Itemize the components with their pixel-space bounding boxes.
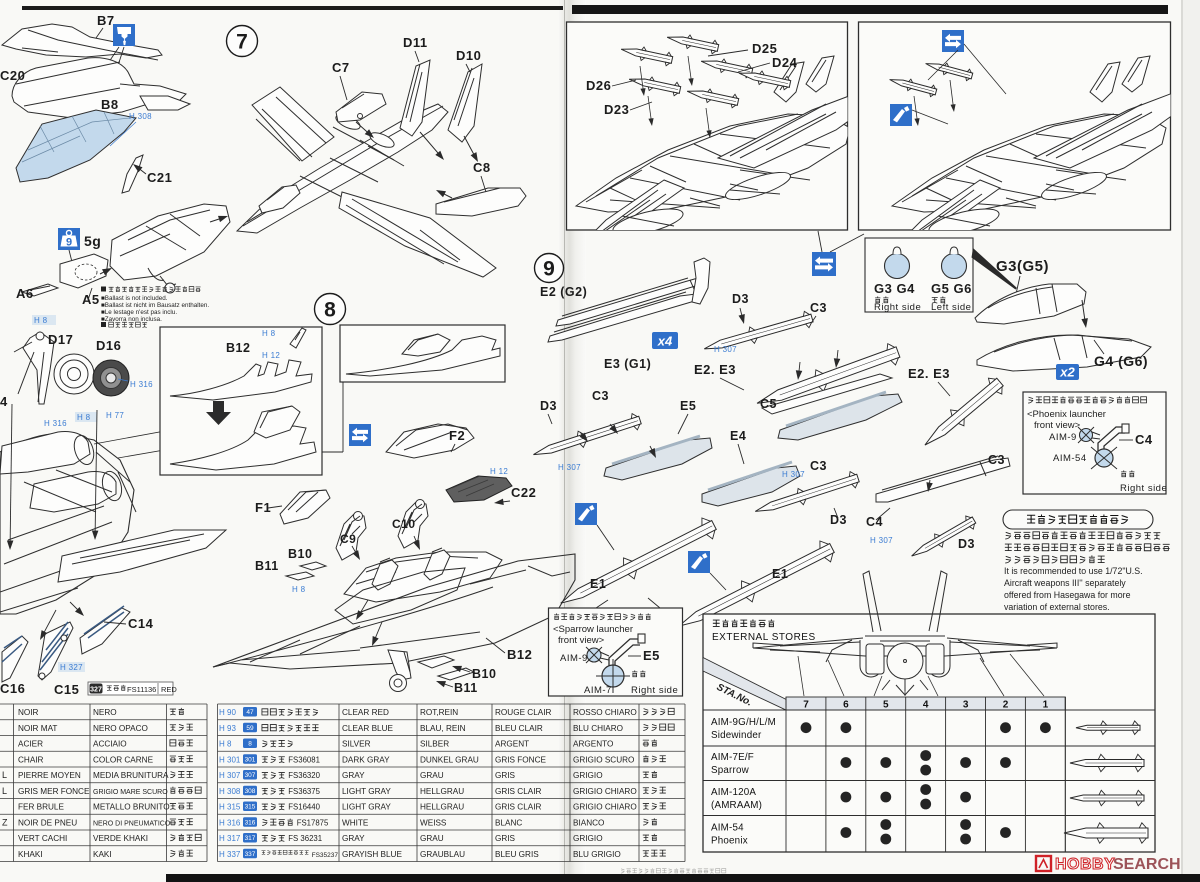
svg-text:C3: C3: [988, 453, 1005, 467]
svg-text:GRIGIO MARE SCURO: GRIGIO MARE SCURO: [93, 789, 168, 796]
svg-text:B7: B7: [97, 13, 115, 28]
svg-text:AIM-120A: AIM-120A: [711, 787, 756, 798]
svg-text:FS36375: FS36375: [288, 787, 320, 796]
svg-text:<Phoenix launcher: <Phoenix launcher: [1027, 409, 1106, 420]
svg-text:DARK GRAY: DARK GRAY: [342, 755, 390, 764]
svg-text:G3(G5): G3(G5): [996, 258, 1049, 275]
svg-text:VERDE KHAKI: VERDE KHAKI: [93, 834, 148, 843]
svg-text:VERT CACHI: VERT CACHI: [18, 834, 67, 843]
svg-text:59: 59: [246, 725, 254, 732]
svg-text:H 316: H 316: [219, 818, 241, 827]
svg-text:8: 8: [248, 741, 252, 748]
svg-text:H 316: H 316: [130, 380, 153, 389]
svg-text:AIM-9G/H/L/M: AIM-9G/H/L/M: [711, 717, 776, 728]
svg-text:Right side: Right side: [1120, 483, 1167, 494]
svg-text:GRAUBLAU: GRAUBLAU: [420, 850, 465, 859]
svg-text:D10: D10: [456, 48, 481, 63]
svg-text:BLU CHIARO: BLU CHIARO: [573, 724, 623, 733]
svg-text:GRAYISH BLUE: GRAYISH BLUE: [342, 850, 402, 859]
svg-text:AIM-7E/F: AIM-7E/F: [711, 752, 754, 763]
svg-text:MEDIA BRUNITURA: MEDIA BRUNITURA: [93, 771, 169, 780]
svg-text:DUNKEL GRAU: DUNKEL GRAU: [420, 755, 479, 764]
svg-text:CHAIR: CHAIR: [18, 755, 44, 764]
svg-text:WHITE: WHITE: [342, 818, 369, 827]
svg-text:H 12: H 12: [262, 351, 280, 360]
svg-text:337: 337: [245, 851, 256, 858]
svg-text:H 316: H 316: [44, 419, 67, 428]
svg-text:Left side: Left side: [931, 302, 971, 313]
svg-text:■Ballast is not included.: ■Ballast is not included.: [101, 295, 168, 302]
svg-text:CLEAR BLUE: CLEAR BLUE: [342, 724, 394, 733]
svg-text:D17: D17: [48, 332, 73, 347]
svg-text:BLAU, REIN: BLAU, REIN: [420, 724, 466, 733]
svg-text:9: 9: [543, 258, 555, 281]
svg-text:FS36320: FS36320: [288, 771, 320, 780]
svg-text:A6: A6: [16, 286, 34, 301]
svg-text:B10: B10: [472, 667, 496, 681]
svg-text:BLEU CLAIR: BLEU CLAIR: [495, 724, 543, 733]
svg-text:GRIGIO: GRIGIO: [573, 834, 603, 843]
svg-text:HELLGRAU: HELLGRAU: [420, 803, 464, 812]
svg-text:ACIER: ACIER: [18, 740, 43, 749]
svg-text:E2 (G2): E2 (G2): [540, 285, 587, 299]
svg-text:H 301: H 301: [219, 755, 241, 764]
svg-text:H 308: H 308: [129, 112, 152, 121]
svg-text:B11: B11: [454, 681, 478, 695]
svg-text:H 337: H 337: [219, 850, 241, 859]
svg-text:ROT,REIN: ROT,REIN: [420, 708, 458, 717]
svg-text:H 8: H 8: [292, 585, 306, 594]
svg-text:FS16440: FS16440: [288, 803, 320, 812]
svg-text:5g: 5g: [84, 233, 101, 249]
svg-text:FS11136: FS11136: [127, 685, 156, 694]
svg-text:E5: E5: [643, 648, 660, 663]
svg-text:D3: D3: [958, 537, 975, 551]
svg-text:ACCIAIO: ACCIAIO: [93, 740, 127, 749]
svg-text:H 307: H 307: [870, 536, 893, 545]
svg-text:G4 (G6): G4 (G6): [1094, 353, 1148, 369]
svg-text:308: 308: [245, 788, 256, 795]
svg-text:L: L: [2, 786, 7, 796]
svg-text:GRAU: GRAU: [420, 771, 444, 780]
svg-text:E2. E3: E2. E3: [908, 366, 950, 381]
svg-text:H 307: H 307: [782, 470, 805, 479]
svg-text:C22: C22: [511, 485, 536, 500]
svg-text:E5: E5: [680, 399, 696, 413]
svg-text:Aircraft weapons III'' sepa: Aircraft weapons III'' separately: [1004, 578, 1126, 588]
svg-text:C3: C3: [810, 301, 827, 315]
svg-text:C4: C4: [1135, 432, 1153, 447]
svg-text:ARGENTO: ARGENTO: [573, 740, 613, 749]
svg-text:H 90: H 90: [219, 708, 236, 717]
svg-text:FS17875: FS17875: [297, 818, 329, 827]
svg-text:It is recommended to use 1/72": It is recommended to use 1/72"U.S.: [1004, 566, 1143, 576]
svg-text:D23: D23: [604, 102, 629, 117]
svg-text:C3: C3: [810, 459, 827, 473]
svg-text:NOIR: NOIR: [18, 708, 39, 717]
svg-text:AIM-9: AIM-9: [1049, 432, 1077, 443]
svg-text:NOIR DE PNEU: NOIR DE PNEU: [18, 818, 77, 827]
svg-text:307: 307: [245, 772, 256, 779]
svg-text:C7: C7: [332, 60, 350, 75]
svg-text:8: 8: [324, 299, 336, 322]
svg-text:EXTERNAL STORES: EXTERNAL STORES: [712, 632, 816, 643]
svg-text:GRIGIO CHIARO: GRIGIO CHIARO: [573, 787, 637, 796]
svg-text:BIANCO: BIANCO: [573, 818, 604, 827]
svg-text:5: 5: [883, 700, 889, 711]
svg-text:GRIS CLAIR: GRIS CLAIR: [495, 803, 541, 812]
svg-text:D25: D25: [752, 41, 777, 56]
svg-text:E4: E4: [730, 429, 746, 443]
svg-text:G5 G6: G5 G6: [931, 281, 972, 296]
svg-text:D11: D11: [403, 35, 428, 50]
svg-text:PIERRE MOYEN: PIERRE MOYEN: [18, 771, 81, 780]
svg-text:GRAY: GRAY: [342, 771, 365, 780]
svg-text:■Ballast ist nicht im Bausatz: ■Ballast ist nicht im Bausatz enthalten.: [101, 302, 209, 309]
svg-text:D3: D3: [830, 513, 847, 527]
svg-text:315: 315: [245, 804, 256, 811]
svg-text:H 8: H 8: [219, 740, 232, 749]
svg-text:GRIS: GRIS: [495, 771, 516, 780]
svg-text:C21: C21: [147, 170, 172, 185]
svg-text:1: 1: [1043, 700, 1049, 711]
svg-text:AIM-54: AIM-54: [1053, 453, 1087, 464]
svg-text:ROUGE CLAIR: ROUGE CLAIR: [495, 708, 552, 717]
svg-text:H 8: H 8: [262, 329, 276, 338]
svg-text:C20: C20: [0, 68, 25, 83]
svg-text:AIM-7: AIM-7: [584, 685, 612, 696]
svg-text:Sidewinder: Sidewinder: [711, 730, 762, 741]
svg-text:HOBBY: HOBBY: [1055, 856, 1115, 873]
svg-text:7: 7: [803, 700, 809, 711]
svg-text:Right side: Right side: [874, 302, 921, 313]
svg-text:4: 4: [0, 394, 8, 409]
svg-text:H 8: H 8: [34, 316, 48, 325]
svg-text:C8: C8: [473, 160, 491, 175]
svg-text:Z: Z: [2, 817, 8, 827]
svg-text:317: 317: [245, 835, 256, 842]
svg-text:BLU GRIGIO: BLU GRIGIO: [573, 850, 621, 859]
svg-text:H 77: H 77: [106, 411, 124, 420]
svg-text:C10: C10: [392, 517, 416, 531]
svg-text:x4: x4: [657, 334, 673, 349]
svg-text:GRIS CLAIR: GRIS CLAIR: [495, 787, 541, 796]
svg-text:front view>: front view>: [1034, 420, 1081, 431]
svg-text:x2: x2: [1059, 365, 1075, 380]
svg-text:B10: B10: [288, 547, 312, 561]
svg-text:LIGHT GRAY: LIGHT GRAY: [342, 803, 391, 812]
svg-text:H 307: H 307: [219, 771, 241, 780]
svg-text:316: 316: [245, 819, 256, 826]
svg-text:G3 G4: G3 G4: [874, 281, 915, 296]
svg-text:D24: D24: [772, 55, 798, 70]
svg-text:WEISS: WEISS: [420, 818, 447, 827]
svg-text:CLEAR RED: CLEAR RED: [342, 708, 389, 717]
svg-text:FS 36231: FS 36231: [288, 834, 322, 843]
svg-text:GRIS MER FONCE: GRIS MER FONCE: [18, 787, 90, 796]
svg-text:B12: B12: [226, 341, 250, 355]
svg-text:F2: F2: [449, 428, 465, 443]
svg-text:H 307: H 307: [714, 345, 737, 354]
svg-text:327: 327: [90, 687, 102, 694]
svg-text:RED: RED: [161, 685, 177, 694]
svg-text:H 327: H 327: [60, 663, 83, 672]
svg-text:front view>: front view>: [558, 635, 605, 646]
svg-text:AIM-9: AIM-9: [560, 653, 588, 664]
svg-text:H 12: H 12: [490, 467, 508, 476]
svg-text:HELLGRAU: HELLGRAU: [420, 787, 464, 796]
svg-text:SILBER: SILBER: [420, 740, 449, 749]
svg-text:GRIS FONCE: GRIS FONCE: [495, 755, 546, 764]
svg-text:ROSSO CHIARO: ROSSO CHIARO: [573, 708, 637, 717]
svg-text:H 317: H 317: [219, 834, 241, 843]
svg-text:C3: C3: [592, 389, 609, 403]
svg-text:<Sparrow launcher: <Sparrow launcher: [553, 624, 633, 635]
svg-text:E3 (G1): E3 (G1): [604, 357, 651, 371]
svg-text:offered from Hasegawa for: offered from Hasegawa for more: [1004, 590, 1131, 600]
svg-text:Right side: Right side: [631, 685, 678, 696]
svg-text:E2. E3: E2. E3: [694, 362, 736, 377]
svg-text:4: 4: [923, 700, 929, 711]
svg-text:D3: D3: [540, 399, 557, 413]
svg-text:B8: B8: [101, 97, 119, 112]
svg-text:E1: E1: [590, 577, 606, 591]
svg-text:FS35237: FS35237: [312, 852, 339, 859]
svg-text:BLEU GRIS: BLEU GRIS: [495, 850, 539, 859]
svg-text:C16: C16: [0, 681, 25, 696]
svg-text:E1: E1: [772, 567, 788, 581]
svg-text:SEARCH: SEARCH: [1113, 856, 1181, 873]
svg-text:Sparrow: Sparrow: [711, 765, 750, 776]
svg-text:BLANC: BLANC: [495, 818, 522, 827]
svg-text:H 315: H 315: [219, 803, 241, 812]
svg-text:GRIGIO CHIARO: GRIGIO CHIARO: [573, 803, 637, 812]
svg-text:C15: C15: [54, 682, 79, 697]
svg-text:B11: B11: [255, 559, 279, 573]
svg-text:47: 47: [246, 709, 254, 716]
svg-text:FS36081: FS36081: [288, 755, 320, 764]
svg-text:variation of external store: variation of external stores.: [1004, 602, 1110, 612]
svg-text:SILVER: SILVER: [342, 740, 371, 749]
svg-text:D3: D3: [732, 292, 749, 306]
svg-text:7: 7: [236, 31, 248, 54]
svg-text:C4: C4: [866, 515, 883, 529]
svg-text:GRAU: GRAU: [420, 834, 444, 843]
svg-text:NERO: NERO: [93, 708, 117, 717]
svg-text:GRIGIO SCURO: GRIGIO SCURO: [573, 755, 634, 764]
svg-text:A5: A5: [82, 292, 100, 307]
svg-text:D26: D26: [586, 78, 611, 93]
svg-text:C14: C14: [128, 616, 154, 631]
svg-text:GRIS: GRIS: [495, 834, 516, 843]
svg-text:GRAY: GRAY: [342, 834, 365, 843]
svg-text:KHAKI: KHAKI: [18, 850, 43, 859]
svg-text:(AMRAAM): (AMRAAM): [711, 800, 762, 811]
svg-text:Phoenix: Phoenix: [711, 836, 748, 847]
svg-text:■Le lestage n'est pas inclu.: ■Le lestage n'est pas inclu.: [101, 309, 177, 316]
svg-text:B12: B12: [507, 647, 532, 662]
svg-text:H 93: H 93: [219, 724, 236, 733]
svg-text:AIM-54: AIM-54: [711, 823, 744, 834]
svg-text:NERO DI PNEUMATICO: NERO DI PNEUMATICO: [93, 820, 171, 827]
svg-text:9: 9: [66, 237, 72, 249]
svg-text:2: 2: [1003, 700, 1009, 711]
svg-text:H 307: H 307: [558, 463, 581, 472]
svg-text:KAKI: KAKI: [93, 850, 112, 859]
svg-text:H 8: H 8: [77, 413, 91, 422]
svg-text:C5: C5: [760, 397, 777, 411]
svg-text:301: 301: [245, 756, 256, 763]
svg-text:LIGHT GRAY: LIGHT GRAY: [342, 787, 391, 796]
svg-text:GRIGIO: GRIGIO: [573, 771, 603, 780]
svg-text:D16: D16: [96, 338, 121, 353]
svg-text:C9: C9: [340, 532, 356, 546]
svg-text:H 308: H 308: [219, 787, 241, 796]
svg-text:L: L: [2, 770, 7, 780]
svg-text:3: 3: [963, 700, 969, 711]
svg-text:METALLO BRUNITO: METALLO BRUNITO: [93, 803, 170, 812]
svg-text:NERO OPACO: NERO OPACO: [93, 724, 148, 733]
svg-text:NOIR MAT: NOIR MAT: [18, 724, 57, 733]
svg-text:ARGENT: ARGENT: [495, 740, 529, 749]
svg-text:COLOR CARNE: COLOR CARNE: [93, 755, 154, 764]
svg-text:FER BRULE: FER BRULE: [18, 803, 64, 812]
svg-text:6: 6: [843, 700, 849, 711]
